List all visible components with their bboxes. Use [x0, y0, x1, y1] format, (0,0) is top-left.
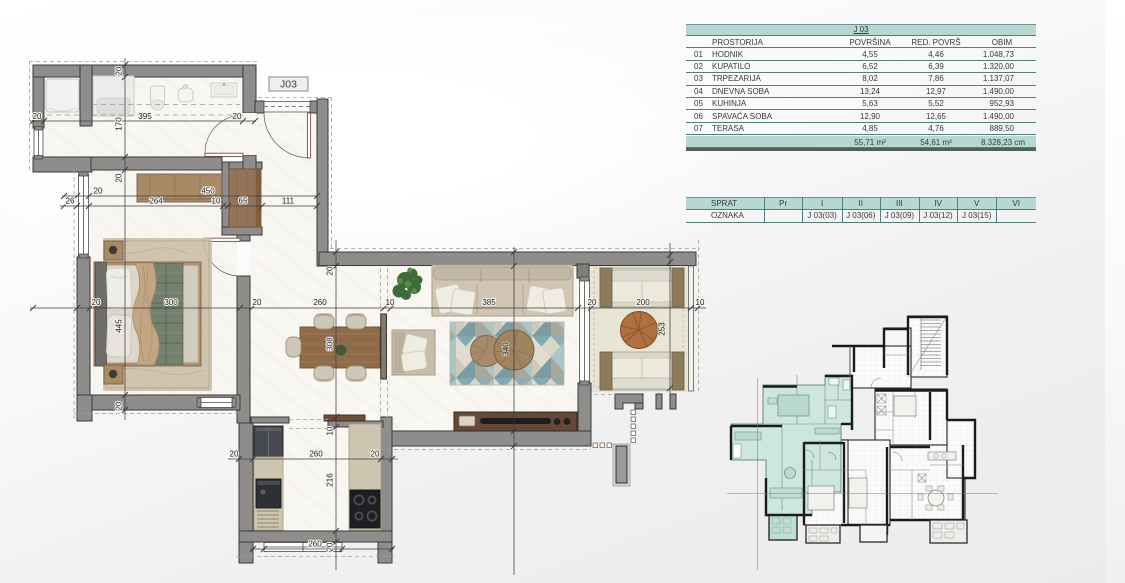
- svg-text:20: 20: [371, 450, 380, 459]
- svg-text:20: 20: [233, 112, 242, 121]
- svg-text:20: 20: [94, 187, 103, 196]
- svg-text:340: 340: [502, 342, 511, 356]
- svg-text:264: 264: [149, 197, 163, 206]
- svg-text:20: 20: [253, 298, 262, 307]
- svg-text:20: 20: [326, 542, 335, 551]
- svg-text:20: 20: [230, 450, 239, 459]
- svg-text:308: 308: [326, 337, 335, 351]
- svg-text:20: 20: [33, 112, 42, 121]
- svg-text:65: 65: [239, 197, 248, 206]
- svg-text:300: 300: [164, 298, 178, 307]
- svg-text:170: 170: [115, 117, 124, 131]
- svg-text:26: 26: [66, 197, 75, 206]
- svg-text:20: 20: [115, 66, 124, 75]
- svg-text:450: 450: [201, 187, 215, 196]
- svg-text:260: 260: [308, 540, 322, 549]
- svg-text:111: 111: [282, 197, 295, 206]
- svg-text:253: 253: [658, 322, 667, 336]
- svg-text:445: 445: [115, 319, 124, 333]
- svg-text:20: 20: [115, 173, 124, 182]
- svg-text:395: 395: [138, 112, 152, 121]
- svg-text:200: 200: [636, 298, 650, 307]
- svg-text:10: 10: [212, 197, 221, 206]
- svg-text:10: 10: [386, 298, 395, 307]
- svg-text:10: 10: [326, 426, 335, 435]
- svg-text:J03: J03: [280, 79, 297, 91]
- svg-text:20: 20: [115, 401, 124, 410]
- svg-text:216: 216: [326, 473, 335, 487]
- svg-text:385: 385: [482, 298, 496, 307]
- svg-text:20: 20: [326, 266, 335, 275]
- svg-text:20: 20: [92, 298, 101, 307]
- svg-text:260: 260: [313, 298, 327, 307]
- svg-text:10: 10: [696, 298, 705, 307]
- svg-text:20: 20: [588, 298, 597, 307]
- svg-text:260: 260: [309, 450, 323, 459]
